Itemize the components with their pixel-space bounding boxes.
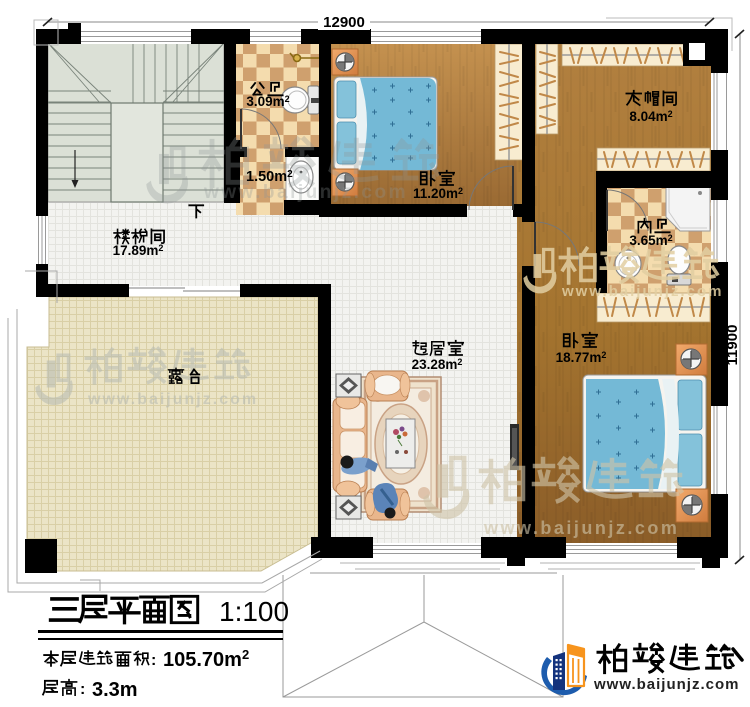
svg-text:11900: 11900 [724,325,741,366]
svg-text:3.65m2: 3.65m2 [629,233,672,248]
svg-text:3.09m2: 3.09m2 [246,94,289,109]
svg-text:17.89m2: 17.89m2 [113,243,164,258]
svg-text:1.50m2: 1.50m2 [246,169,293,185]
svg-text:www.baijunjz.com: www.baijunjz.com [593,676,739,693]
svg-text:18.77m2: 18.77m2 [556,350,607,365]
svg-text:8.04m2: 8.04m2 [629,109,672,124]
svg-text:12900: 12900 [323,14,365,31]
svg-text:11.20m2: 11.20m2 [413,186,463,201]
svg-text::: : [151,652,156,669]
svg-text:www.baijunjz.com: www.baijunjz.com [483,518,679,538]
svg-text:www.baijunjz.com: www.baijunjz.com [561,283,723,300]
svg-text:1:100: 1:100 [219,596,289,627]
svg-text:105.70m2: 105.70m2 [163,647,249,671]
svg-text:23.28m2: 23.28m2 [412,357,463,372]
svg-text:www.baijunjz.com: www.baijunjz.com [87,391,258,408]
svg-text:www.baijunjz.com: www.baijunjz.com [203,182,408,203]
svg-text::: : [80,681,85,698]
svg-text:3.3m: 3.3m [92,679,138,701]
